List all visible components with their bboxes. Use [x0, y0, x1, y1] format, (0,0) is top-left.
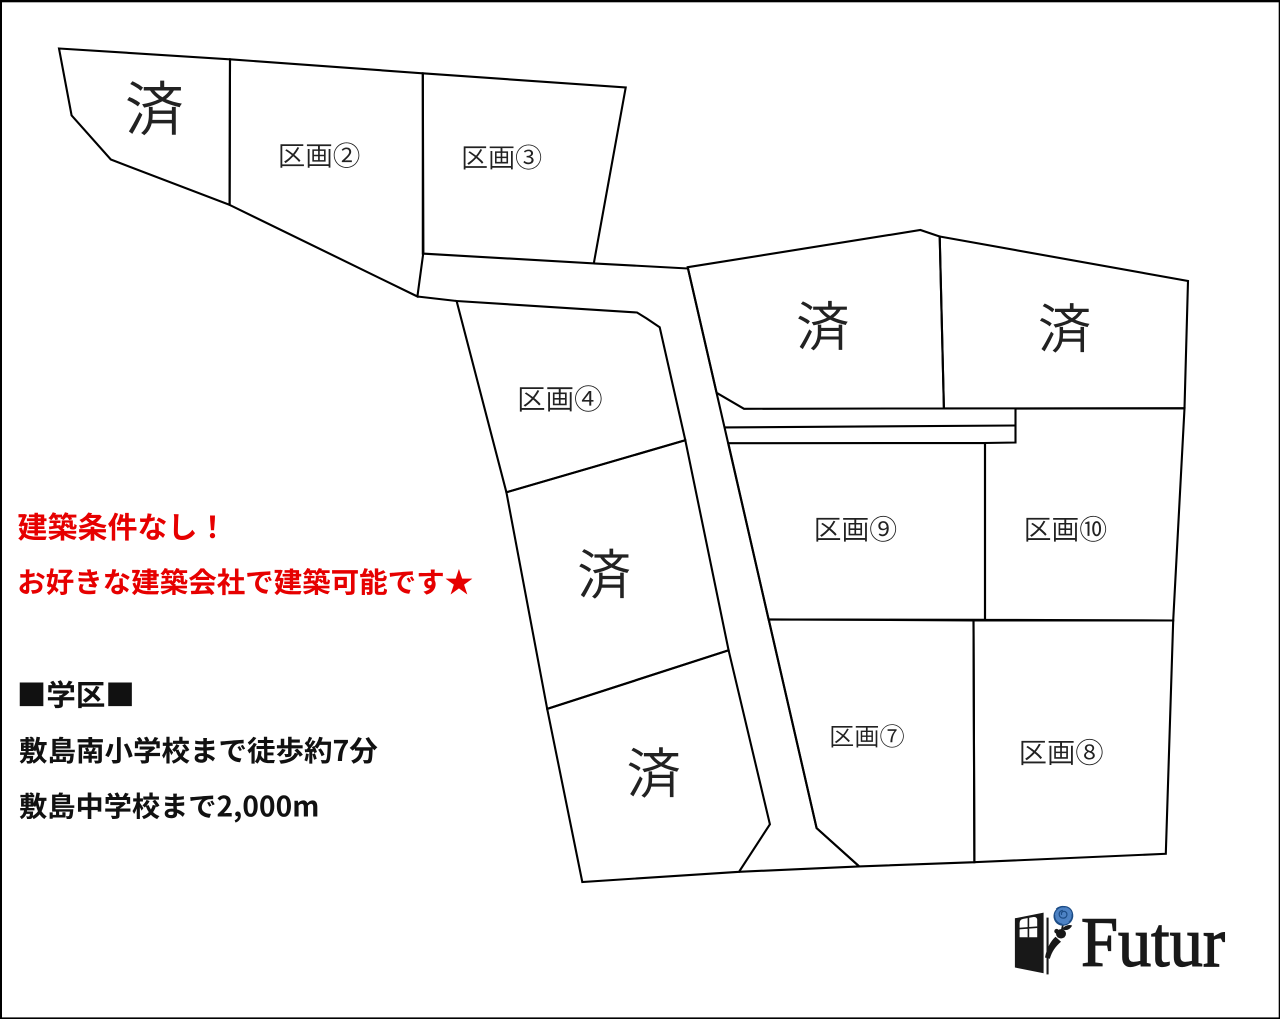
svg-text:Futur: Futur: [1081, 904, 1225, 982]
